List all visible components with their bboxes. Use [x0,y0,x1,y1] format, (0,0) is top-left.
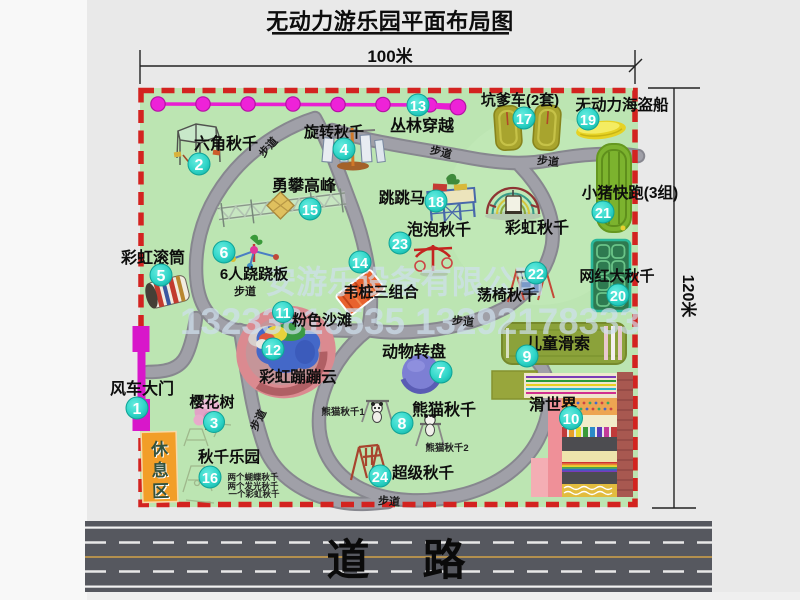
svg-text:2: 2 [195,157,204,174]
svg-text:跳跳马: 跳跳马 [379,188,426,207]
svg-text:14: 14 [352,256,368,272]
svg-text:休: 休 [150,439,170,459]
svg-text:120米: 120米 [679,275,698,319]
svg-text:樱花树: 樱花树 [189,393,234,411]
svg-text:9: 9 [523,349,532,366]
svg-text:100米: 100米 [367,46,413,66]
svg-text:16: 16 [202,471,218,487]
svg-text:18: 18 [428,195,444,211]
svg-text:23: 23 [392,237,408,253]
svg-text:6: 6 [220,245,229,262]
svg-text:动物转盘: 动物转盘 [382,342,446,361]
svg-text:步道: 步道 [234,284,256,298]
svg-text:10: 10 [563,411,580,428]
svg-text:3: 3 [210,415,218,432]
svg-text:荡椅秋千: 荡椅秋千 [477,286,537,304]
svg-text:秋千乐园: 秋千乐园 [198,447,260,466]
svg-text:15: 15 [302,203,318,219]
svg-text:熊猫秋千1: 熊猫秋千1 [321,406,365,418]
svg-text:17: 17 [516,112,532,128]
svg-text:21: 21 [595,206,611,222]
svg-text:13: 13 [410,99,426,115]
svg-text:8: 8 [398,416,407,433]
svg-text:1: 1 [133,401,142,418]
svg-text:勇攀高峰: 勇攀高峰 [272,176,337,195]
svg-text:丛林穿越: 丛林穿越 [390,116,455,135]
svg-text:彩虹蹦蹦云: 彩虹蹦蹦云 [258,367,337,386]
svg-text:道: 道 [327,537,370,585]
svg-text:一个彩虹秋千: 一个彩虹秋千 [228,489,280,499]
svg-text:彩虹滚筒: 彩虹滚筒 [120,248,185,267]
svg-text:24: 24 [372,470,388,486]
svg-text:小猪快跑(3组): 小猪快跑(3组) [582,183,678,202]
svg-text:泡泡秋千: 泡泡秋千 [407,220,471,239]
svg-text:11: 11 [275,306,290,322]
svg-text:风车大门: 风车大门 [110,379,174,398]
svg-text:22: 22 [528,267,544,283]
svg-text:12: 12 [265,343,281,359]
svg-text:19: 19 [580,113,596,129]
svg-text:网红大秋千: 网红大秋千 [579,267,654,285]
svg-text:彩虹秋千: 彩虹秋千 [504,218,569,237]
svg-text:六角秋千: 六角秋千 [194,134,258,153]
svg-text:息: 息 [151,460,169,480]
svg-text:5: 5 [157,268,166,285]
svg-text:超级秋千: 超级秋千 [391,463,455,482]
svg-text:熊猫秋千2: 熊猫秋千2 [425,442,468,454]
svg-text:旋转秋千: 旋转秋千 [303,123,364,141]
svg-text:熊猫秋千: 熊猫秋千 [412,400,476,419]
svg-text:20: 20 [610,289,626,305]
svg-text:步道: 步道 [378,493,401,509]
svg-text:无动力游乐园平面布局图: 无动力游乐园平面布局图 [266,9,514,34]
svg-text:7: 7 [437,365,446,382]
svg-text:路: 路 [423,537,467,585]
svg-text:6人跷跷板: 6人跷跷板 [220,265,289,283]
svg-text:区: 区 [152,482,169,501]
svg-text:粉色沙滩: 粉色沙滩 [292,311,352,329]
svg-text:4: 4 [340,142,349,159]
svg-text:坑爹车(2套): 坑爹车(2套) [481,91,559,109]
svg-text:韦桩三组合: 韦桩三组合 [343,283,419,301]
